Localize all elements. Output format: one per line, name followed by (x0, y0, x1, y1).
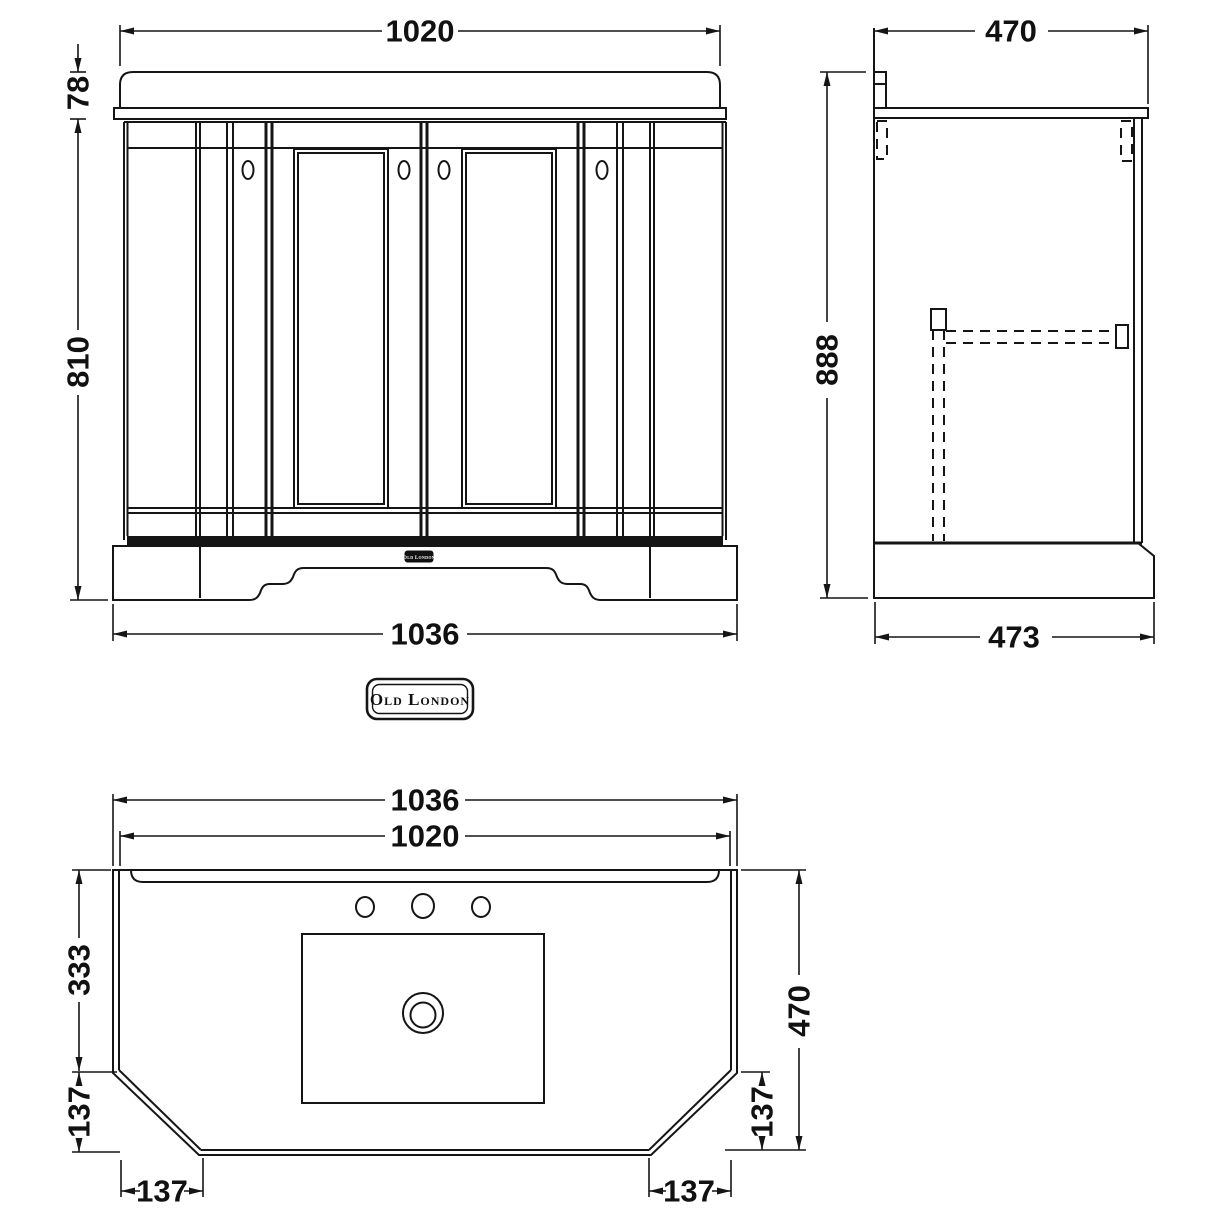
dim-plan-chamfer-bottom-right: 137 (663, 1174, 715, 1209)
dim-front-top-width: 1020 (386, 14, 455, 49)
side-dimensions: 470 888 473 (810, 14, 1155, 655)
door-handle-3 (439, 161, 450, 179)
technical-drawing-page: Old London 1020 78 810 1036 (0, 0, 1224, 1224)
door-handle-2 (399, 161, 410, 179)
plinth-badge-text: Old London (403, 556, 435, 561)
front-cabinet-frame (124, 122, 726, 540)
vanity-technical-drawing: Old London 1020 78 810 1036 (0, 0, 1224, 1224)
front-door-panel-left-inner (298, 153, 384, 504)
door-handle-1 (243, 161, 254, 179)
tap-hole-center (412, 894, 434, 918)
dim-plan-chamfer-side-right: 137 (745, 1086, 780, 1138)
dim-front-base-width: 1036 (391, 617, 460, 652)
front-dimensions: 1020 78 810 1036 (61, 14, 738, 652)
front-door-panel-right (462, 149, 556, 508)
brand-badge-text: Old London (370, 690, 470, 709)
plan-dimensions: 1036 1020 333 137 470 137 137 137 (62, 783, 817, 1209)
brand-badge: Old London (367, 679, 473, 719)
dim-plan-back-to-chamfer: 333 (62, 944, 97, 996)
dim-plan-chamfer-side-left: 137 (62, 1086, 97, 1138)
dim-plan-overall-width: 1036 (391, 783, 460, 818)
front-kick-band (127, 536, 723, 545)
front-countertop-lip (114, 108, 726, 119)
front-door-panel-right-inner (466, 153, 552, 504)
dim-front-counter-height: 78 (61, 76, 96, 110)
dim-side-depth: 470 (985, 14, 1037, 49)
side-upstand (874, 72, 886, 108)
basin-drain-inner (411, 1003, 436, 1028)
plan-view: 1036 1020 333 137 470 137 137 137 (62, 783, 817, 1209)
door-handle-4 (597, 161, 608, 179)
plan-outline-inner (119, 870, 731, 1150)
side-countertop-slab (874, 108, 1148, 118)
dim-front-body-height: 810 (61, 336, 96, 388)
front-view: Old London 1020 78 810 1036 (61, 14, 738, 652)
tap-hole-right (472, 897, 490, 917)
side-view: 470 888 473 (810, 14, 1155, 655)
front-door-panel-left (294, 149, 388, 508)
plan-outline (113, 870, 737, 1155)
dim-side-base-depth: 473 (988, 620, 1040, 655)
side-bracket-right (1121, 121, 1132, 161)
dim-side-height: 888 (810, 334, 845, 386)
side-plinth (874, 543, 1154, 598)
side-hidden-frame (931, 309, 1128, 541)
dim-plan-depth: 470 (782, 985, 817, 1037)
dim-plan-chamfer-bottom-left: 137 (136, 1174, 188, 1209)
front-countertop (120, 72, 720, 108)
basin-bowl (302, 934, 544, 1103)
plinth-badge: Old London (403, 551, 435, 562)
tap-hole-left (356, 897, 374, 917)
side-bracket-left (877, 121, 887, 159)
dim-plan-top-width: 1020 (391, 819, 460, 854)
